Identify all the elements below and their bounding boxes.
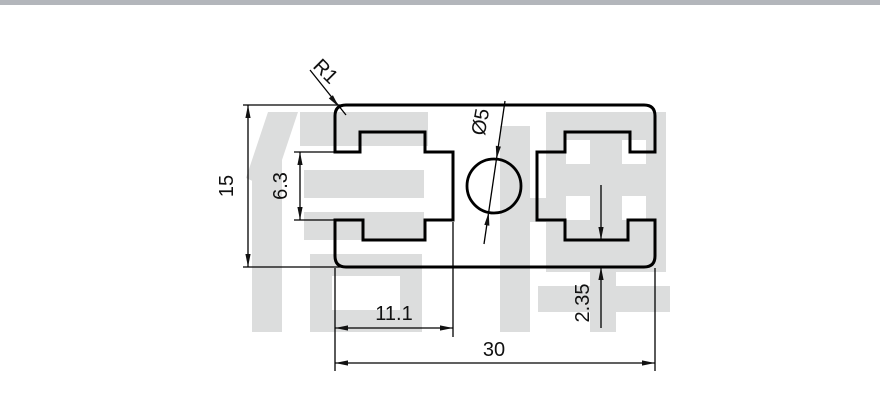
watermark-stroke-hole [622, 196, 646, 220]
arrowhead [245, 254, 250, 267]
dim-hole-diameter: Ø5 [468, 101, 505, 244]
dim-label-overall-width: 30 [483, 339, 505, 361]
arrowhead [245, 105, 250, 118]
dim-label-slot-depth: 11.1 [375, 303, 412, 325]
arrowhead [642, 360, 655, 365]
profile-drawing-svg: 15 6.3 R1 Ø5 [0, 0, 880, 420]
dim-label-lip-thickness: 2.35 [572, 284, 594, 323]
arrowhead [297, 152, 302, 165]
dim-label-slot-opening: 6.3 [270, 172, 292, 200]
arrowhead [484, 212, 489, 225]
watermark-stroke [300, 112, 428, 146]
watermark-stroke [500, 126, 530, 332]
watermark [246, 112, 670, 332]
arrowhead [335, 360, 348, 365]
dim-label-corner-radius: R1 [308, 55, 342, 89]
watermark-stroke-hole [566, 196, 590, 220]
watermark-stroke-hole [566, 140, 590, 164]
dim-label-hole-diameter: Ø5 [468, 107, 494, 137]
arrowhead [440, 325, 453, 330]
cad-drawing-page: 信牌 [0, 0, 880, 420]
dim-label-overall-height: 15 [216, 175, 238, 197]
arrowhead [297, 207, 302, 220]
watermark-stroke [304, 170, 424, 198]
